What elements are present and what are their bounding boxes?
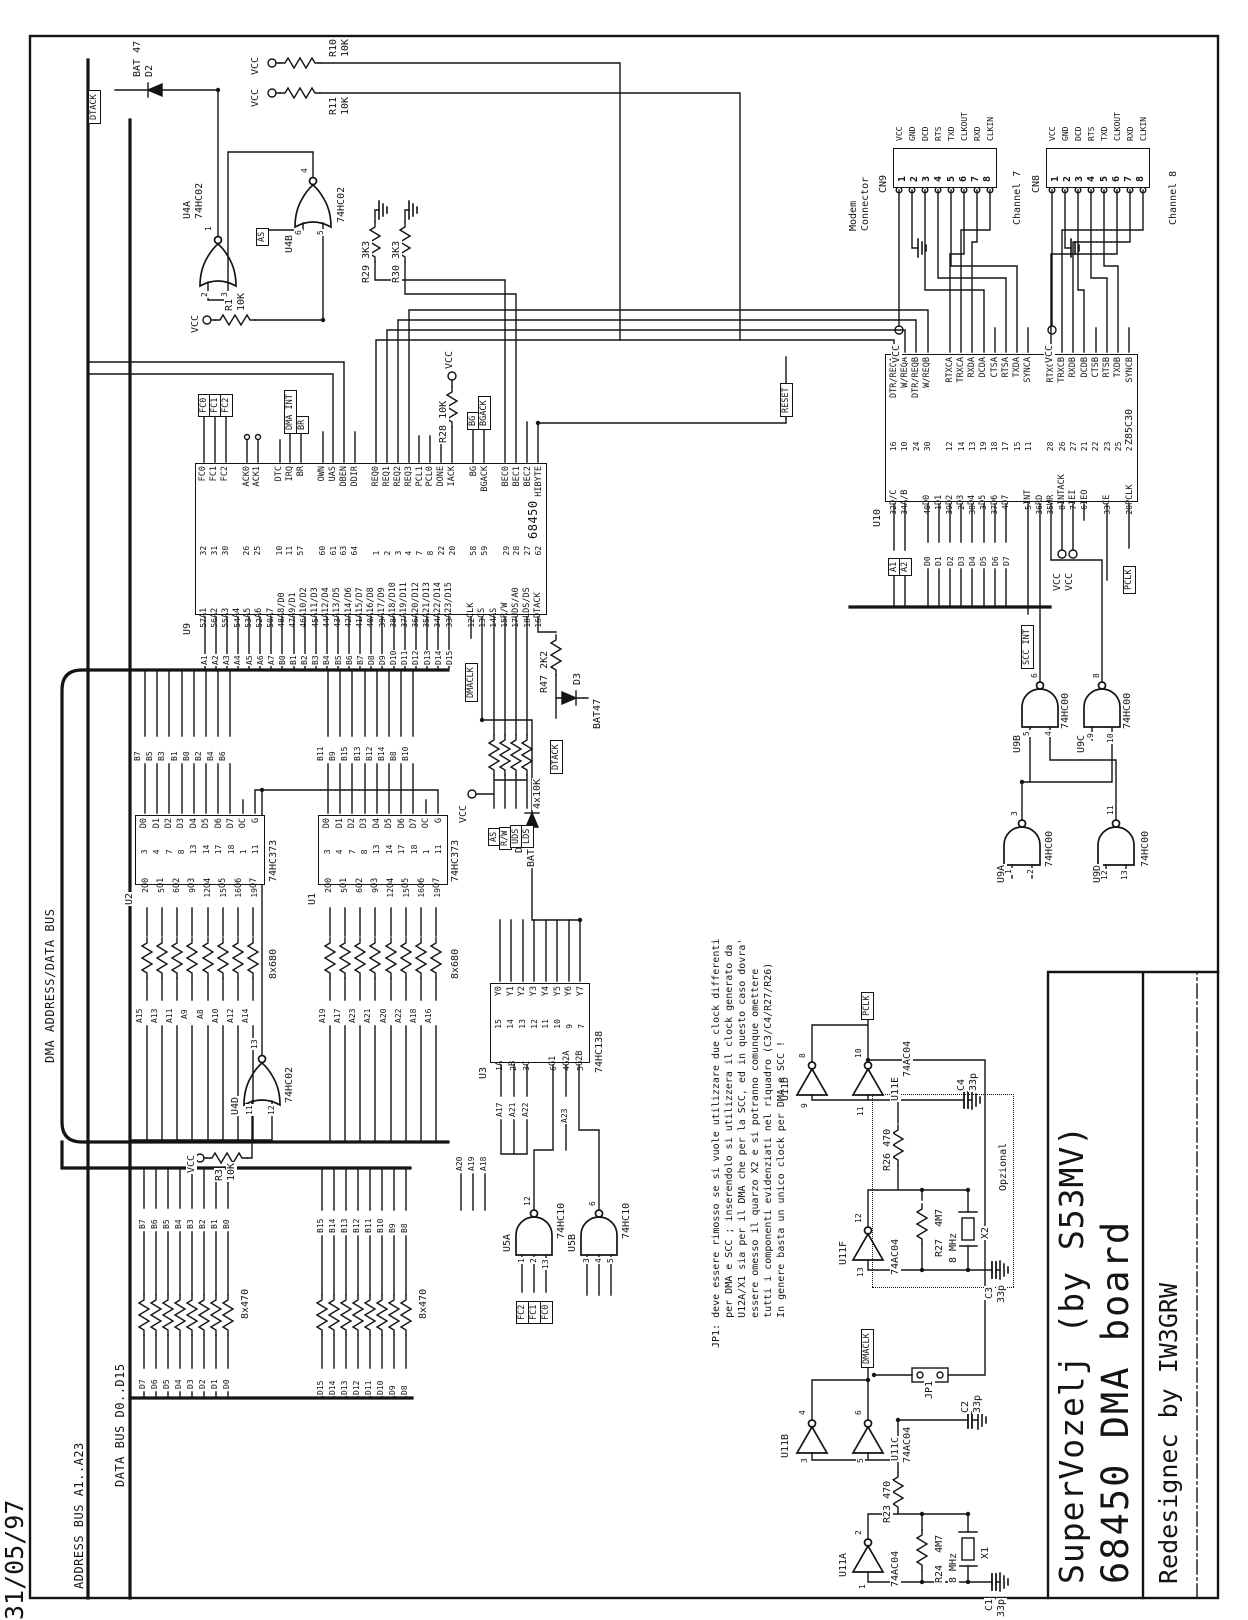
ic-pin: G11	[433, 818, 445, 860]
schematic-label: B10	[401, 746, 410, 762]
ic-pin	[230, 466, 241, 562]
schematic-label: 4	[594, 1257, 603, 1264]
schematic-label: A23	[348, 1008, 357, 1024]
schematic-label: 6	[294, 229, 303, 236]
pin-name: Q3	[370, 878, 380, 888]
redesigned-by: Redesignec by IW3GRW	[1154, 1283, 1183, 1584]
pin-number: 3	[522, 1066, 531, 1082]
schematic-label: B10	[376, 1218, 385, 1234]
ic-pin	[1034, 357, 1045, 457]
wire-label: D8	[366, 632, 377, 666]
schematic-label: B3	[186, 1218, 195, 1230]
schematic-label: 10K	[226, 1162, 237, 1182]
schematic-label: C1	[984, 1598, 995, 1612]
schematic-label: B2	[198, 1218, 207, 1230]
schematic-label: B6	[218, 750, 227, 762]
pin-number: 2	[509, 1066, 518, 1082]
pin-number: 15	[402, 888, 411, 904]
pin-name: D4	[967, 495, 977, 505]
ic-pin: Y411	[540, 986, 552, 1035]
pin-number: 1	[495, 1066, 504, 1082]
schematic-label: 74HC00	[1122, 692, 1133, 730]
schematic-label: B8	[389, 750, 398, 762]
ic-74hc138-decoder: 1A2B3C6G14G2A5G2B Y015Y114Y213Y312Y411Y5…	[490, 983, 590, 1063]
schematic-label: 8x470	[240, 1288, 251, 1320]
schematic-label: DMA ADDRESS/DATA BUS	[44, 908, 57, 1065]
connector-pin: 7	[1123, 175, 1135, 183]
ic-pin: TRXCB26	[1057, 357, 1068, 457]
schematic-label: R47 2K2	[539, 650, 550, 694]
schematic-label: A22	[394, 1008, 403, 1024]
ic-pin: G11	[250, 818, 262, 860]
schematic-label: B5	[162, 1218, 171, 1230]
pin-number: 6	[172, 888, 181, 904]
pin-number: 1	[934, 505, 943, 521]
signal-flag: LDS	[521, 825, 534, 848]
pin-name: A7	[266, 608, 276, 618]
signal-flag: AS	[256, 228, 269, 246]
schematic-label: 12	[523, 1195, 532, 1207]
schematic-label: 12	[1100, 869, 1109, 881]
schematic-label: D6	[150, 1378, 159, 1390]
pin-name: Y0	[494, 986, 504, 1035]
schematic-label: B15	[340, 746, 349, 762]
pin-name: REQ1	[382, 466, 392, 562]
schematic-label: 74AC04	[902, 1426, 913, 1464]
schematic-label: B14	[328, 1218, 337, 1234]
schematic-label: B7	[133, 750, 142, 762]
ic-74hc373-u2: 2Q05Q16Q29Q312Q415Q516Q619Q7 D03D14D27D3…	[135, 815, 265, 885]
inverter-u11a	[853, 1539, 883, 1572]
pin-number: 6	[549, 1066, 558, 1082]
pin-name: D3	[359, 818, 369, 860]
signal-name: TXD	[945, 92, 958, 142]
ic-z85c30-scc: 32D/C34A/B40D01D139D22D338D43D537D64D75I…	[885, 354, 1138, 502]
ic-pin: D514	[383, 818, 395, 860]
schematic-label: B1	[170, 750, 179, 762]
ic-pin	[933, 357, 944, 457]
nand3-gate-u5b	[581, 1210, 617, 1255]
schematic-label: 74AC04	[890, 1550, 901, 1588]
schematic-label: JP1	[924, 1380, 935, 1400]
ic-pin: BGACK59	[479, 466, 490, 562]
schematic-label: ADDRESS BUS A1..A23	[73, 1441, 86, 1590]
signal-flag: BR	[296, 416, 309, 434]
pin-number: 15	[500, 618, 509, 634]
schematic-label: 10	[854, 1047, 863, 1059]
schematic-label: 5	[1022, 730, 1031, 737]
ic-pin: W/REQB30	[922, 357, 933, 457]
ic-pin: Y114	[505, 986, 517, 1035]
schematic-label: D15	[316, 1380, 325, 1396]
connector-pin: 6	[1110, 175, 1122, 183]
schematic-label: D0	[222, 1378, 231, 1390]
wire-label: D3	[956, 545, 967, 567]
signal-name: DCD	[919, 92, 932, 142]
schematic-label: A17	[333, 1008, 342, 1024]
ic-pin: DTC10	[274, 466, 285, 562]
ic-pin: BR57	[295, 466, 306, 562]
schematic-label: 5	[316, 229, 325, 236]
ic-pin-column: FC032FC131FC230ACK026ACK125DTC10IRQ11BR5…	[198, 466, 544, 562]
pin-number: 20	[1125, 505, 1134, 521]
pin-name: G	[434, 818, 444, 860]
signal-flag: DTACK	[550, 740, 563, 774]
pin-name: A9/D1	[288, 592, 298, 618]
wire-label: B5	[333, 632, 344, 666]
wire-label: B7	[355, 632, 366, 666]
ic-pin: Y213	[517, 986, 529, 1035]
schematic-label: A13	[150, 1008, 159, 1024]
ic-pin: D617	[212, 818, 224, 860]
pin-name: REQ3	[404, 466, 414, 562]
schematic-label: B13	[340, 1218, 349, 1234]
signal-name: GND	[1059, 92, 1072, 142]
pin-number: 7	[1069, 505, 1078, 521]
pin-name: D5	[201, 818, 211, 860]
ic-pin: BEC029	[501, 466, 512, 562]
schematic-label: 11	[856, 1105, 865, 1117]
connector-cn9: 12345678	[893, 148, 997, 188]
pin-name: Y1	[506, 986, 516, 1035]
schematic-label: C4	[956, 1078, 967, 1092]
wire-label: D1	[933, 545, 944, 567]
schematic-label: BAT47	[592, 698, 603, 730]
schematic-label: U11C	[890, 1436, 901, 1462]
ic-pin: PCL17	[414, 466, 425, 562]
schematic-label: 8 MHz	[948, 1232, 959, 1264]
pin-name: Q0	[324, 878, 334, 888]
pin-name: BGACK	[480, 466, 490, 562]
pin-number: 6	[355, 888, 364, 904]
schematic-label: 4	[300, 167, 309, 174]
signal-name: VCC	[1046, 92, 1059, 142]
schematic-label: 10	[1106, 732, 1115, 744]
pin-name: Q0	[141, 878, 151, 888]
wire-label: A4	[232, 632, 243, 666]
pin-name: D0	[922, 495, 932, 505]
pin-name: A3	[221, 608, 231, 618]
pin-name: RXDA	[967, 357, 977, 457]
ic-pin: D413	[188, 818, 200, 860]
pin-name: DCDB	[1080, 357, 1090, 457]
pin-name: A/B	[900, 490, 910, 505]
scanned-schematic-page: 57A156A255A354A453A552A650A748A8/D047A9/…	[0, 0, 1248, 1620]
inverter-u11d	[797, 1062, 827, 1095]
schematic-label: 6	[1030, 672, 1039, 679]
signal-flag: FC2	[220, 394, 233, 417]
pin-name: RXDB	[1068, 357, 1078, 457]
schematic-label: 6	[588, 1200, 597, 1207]
pin-name: UAS	[328, 466, 338, 562]
schematic-label: B9	[328, 750, 337, 762]
pin-name: Q2	[355, 878, 365, 888]
ic-pin: FC032	[198, 466, 209, 562]
pin-number: 12	[386, 888, 395, 904]
schematic-label: VCC	[1044, 344, 1055, 364]
pin-name: C	[522, 1061, 532, 1066]
schematic-label: 74HC373	[268, 839, 279, 883]
ic-pin: Y77	[575, 986, 587, 1035]
pin-number: 14	[489, 618, 498, 634]
schematic-label: U4B	[284, 234, 295, 254]
pin-name: DTACK	[533, 592, 543, 618]
schematic-label: R26 470	[882, 1128, 893, 1172]
pin-number: 5	[157, 888, 166, 904]
pin-name: A8/D0	[277, 592, 287, 618]
schematic-label: 13	[1120, 869, 1129, 881]
pin-name: D6	[990, 495, 1000, 505]
schematic-label: 74HC138	[594, 1030, 605, 1074]
ic-pin: D718	[408, 818, 420, 860]
schematic-label: B11	[364, 1218, 373, 1234]
u9-bus-wire-labels: A1A2A3A4A5A6A7B0B1B2B3B4B5B6B7D8D9D10D11…	[199, 632, 455, 666]
pin-number: 13	[478, 618, 487, 634]
schematic-label: R23 470	[882, 1480, 893, 1524]
pin-name: DDIR	[350, 466, 360, 562]
pin-name: Q2	[172, 878, 182, 888]
ic-pin-column: Y015Y114Y213Y312Y411Y510Y69Y77	[493, 986, 587, 1035]
pin-name: Y2	[517, 986, 527, 1035]
schematic-label: A19	[467, 1156, 476, 1172]
signal-flag: BGACK	[478, 396, 491, 430]
wire-label: A1	[199, 632, 210, 666]
pin-name: RTSB	[1102, 357, 1112, 457]
pin-number: 12	[467, 618, 476, 634]
ic-pin	[263, 466, 274, 562]
pin-number: 15	[219, 888, 228, 904]
pin-name: Y5	[553, 986, 563, 1035]
ic-pin	[490, 466, 501, 562]
ic-pin-column: DTR/REQA16W/REQA10DTR/REQB24W/REQB30RTXC…	[888, 357, 1135, 457]
connector-pin: 2	[1061, 175, 1073, 183]
ic-pin: RTSB23	[1101, 357, 1112, 457]
schematic-label: CN9	[878, 174, 889, 194]
diodes	[148, 83, 576, 827]
schematic-label: A10	[211, 1008, 220, 1024]
schematic-label: A20	[379, 1008, 388, 1024]
schematic-label: A19	[318, 1008, 327, 1024]
pin-name: TXDB	[1113, 357, 1123, 457]
ic-pin: D03	[138, 818, 150, 860]
pin-name: Y7	[576, 986, 586, 1035]
schematic-label: 1	[517, 1257, 526, 1264]
schematic-label: X1	[980, 1546, 991, 1560]
pin-name: UDS/A0	[511, 587, 521, 618]
signal-name: CLKIN	[1137, 92, 1150, 142]
schematic-label: 4	[1044, 730, 1053, 737]
pin-name: D0	[322, 818, 332, 860]
ic-pin: Y015	[493, 986, 505, 1035]
schematic-label: VCC	[891, 344, 902, 364]
pin-name: W/REQB	[922, 357, 932, 457]
schematic-label: U5A	[502, 1233, 513, 1253]
pin-name: SYNCA	[1023, 357, 1033, 457]
pin-name: CS	[477, 608, 487, 618]
pin-number: 2	[324, 888, 333, 904]
inverter-u11e	[853, 1062, 883, 1095]
schematic-label: 2	[200, 291, 209, 298]
wire-label: B3	[310, 632, 321, 666]
schematic-label: A17	[495, 1102, 504, 1118]
schematic-label: B14	[377, 746, 386, 762]
pin-name: IEI	[1068, 490, 1078, 505]
schematic-label: 10K	[340, 96, 351, 116]
schematic-label: 10K	[236, 292, 247, 312]
signal-name: CLKOUT	[1111, 92, 1124, 142]
ic-pin: D03	[321, 818, 333, 860]
schematic-label: X2	[980, 1226, 991, 1240]
wire-label: D12	[410, 632, 421, 666]
note-line: U12A/X1 sia per il DMA che per la SCC, e…	[736, 939, 749, 1348]
pin-name: BR	[296, 466, 306, 562]
ic-pin: D413	[371, 818, 383, 860]
ic-74hc373-u1: 2Q05Q16Q29Q312Q415Q516Q619Q7 D03D14D27D3…	[318, 815, 448, 885]
pin-name: INTACK	[1057, 474, 1067, 505]
signal-flag: A2	[899, 558, 912, 576]
inverter-u11b	[797, 1420, 827, 1453]
pin-name: IRQ	[285, 466, 295, 562]
schematic-title: SuperVozelj (by S53MV)	[1052, 1125, 1091, 1584]
pin-name: R/W	[500, 603, 510, 618]
schematic-label: 74AC04	[890, 1238, 901, 1276]
pin-name: A18/D10	[388, 582, 398, 618]
schematic-label: 13	[250, 1038, 259, 1050]
schematic-label: 12	[267, 1104, 276, 1116]
pin-number: 35	[1046, 505, 1055, 521]
pin-name: PCL0	[425, 466, 435, 562]
pin-name: BEC1	[512, 466, 522, 562]
pin-name: Q4	[386, 878, 396, 888]
connector-pin: 3	[1074, 175, 1086, 183]
connector-pin: 4	[933, 175, 945, 183]
pin-number: 12	[203, 888, 212, 904]
pin-name: A11/D3	[310, 587, 320, 618]
nand-gate-u9d	[1098, 820, 1134, 865]
pin-number: 32	[889, 505, 898, 521]
pin-name: FC0	[198, 466, 208, 562]
schematic-label: R27 4M7	[934, 1208, 945, 1258]
pin-name: Y6	[564, 986, 574, 1035]
ic-pin: W/REQA10	[899, 357, 910, 457]
schematic-label: D14	[328, 1380, 337, 1396]
pin-number: 4	[1001, 505, 1010, 521]
ic-pin: ACK125	[252, 466, 263, 562]
schematic-label: 12	[854, 1212, 863, 1224]
schematic-label: 74HC02	[336, 186, 347, 224]
pin-number: 19	[250, 888, 259, 904]
cn9-signal-names: VCCGNDDCDRTSTXDCLKOUTRXDCLKIN	[893, 92, 997, 142]
schematic-label: 8x470	[418, 1288, 429, 1320]
pin-name: D4	[189, 818, 199, 860]
pin-name: Q7	[249, 878, 259, 888]
schematic-label: R28 10K	[438, 400, 449, 444]
schematic-label: U4D	[230, 1096, 241, 1116]
pin-name: A20/D12	[411, 582, 421, 618]
schematic-label: 11	[245, 1104, 254, 1116]
ic-pin: DDIR64	[349, 466, 360, 562]
schematic-label: 10K	[340, 38, 351, 58]
ic-pin: DTR/REQB24	[910, 357, 921, 457]
pin-name: BG	[469, 466, 479, 562]
schematic-label: R30 3K3	[391, 240, 402, 284]
pin-name: Q1	[339, 878, 349, 888]
wire-label: A6	[255, 632, 266, 666]
schematic-label: D3	[572, 672, 583, 686]
ic-pin: FC131	[209, 466, 220, 562]
ic-pin: TXDB25	[1113, 357, 1124, 457]
pin-name: A12/D4	[321, 587, 331, 618]
schematic-label: B12	[365, 746, 374, 762]
nor-gate-u4a	[200, 237, 236, 287]
ic-pin: PCL08	[425, 466, 436, 562]
ic-pin: RTXCB28	[1045, 357, 1056, 457]
nand-gate-u9a	[1004, 820, 1040, 865]
connector-pin: 3	[921, 175, 933, 183]
schematic-label: 74HC10	[621, 1202, 632, 1240]
pin-number: 9	[371, 888, 380, 904]
ic-pin: D718	[225, 818, 237, 860]
wire-label: D2	[945, 545, 956, 567]
schematic-label: 74AC04	[902, 1040, 913, 1078]
schematic-label: 74HC02	[194, 182, 205, 220]
pin-name: A5	[243, 608, 253, 618]
schematic-label: R29 3K3	[361, 240, 372, 284]
pin-name: DTC	[274, 466, 284, 562]
ic-pin: RTSA17	[1000, 357, 1011, 457]
pin-name: RTXCA	[945, 357, 955, 457]
pin-name: D1	[934, 495, 944, 505]
ic-pin: CTSA18	[989, 357, 1000, 457]
pin-name: OC	[421, 818, 431, 860]
schematic-label: VCC	[186, 1154, 197, 1174]
pin-name: A16/D8	[366, 587, 376, 618]
wire-label: B2	[299, 632, 310, 666]
ic-pin: DCDA19	[978, 357, 989, 457]
connector-pin: 1	[896, 175, 908, 183]
signal-flag: DMACLK	[861, 1329, 874, 1368]
pin-name: G2B	[575, 1051, 585, 1066]
pin-name: Q1	[156, 878, 166, 888]
schematic-label: 2	[1026, 868, 1035, 875]
pin-name: INT	[1023, 490, 1033, 505]
schematic-label: 5	[606, 1257, 615, 1264]
schematic-label: Modem	[848, 200, 859, 232]
schematic-label: 4	[798, 1409, 807, 1416]
wire-label: D0	[922, 545, 933, 567]
signal-name: RTS	[932, 92, 945, 142]
pin-name: A1	[199, 608, 209, 618]
pin-number: 16	[417, 888, 426, 904]
signal-flag: SCC INT	[1021, 625, 1034, 669]
pin-name: DBEN	[339, 466, 349, 562]
schematic-label: R10	[328, 38, 339, 58]
pin-name: D2	[945, 495, 955, 505]
schematic-label: A20	[455, 1156, 464, 1172]
ic-pin: ACK026	[241, 466, 252, 562]
ic-pin-column: D03D14D27D38D413D514D617D718OC1G11	[321, 818, 445, 860]
schematic-label: A21	[508, 1102, 517, 1118]
schematic-label: BAT 47	[132, 40, 143, 78]
pin-name: A2	[210, 608, 220, 618]
signal-name: RTS	[1085, 92, 1098, 142]
connector-pin: 5	[945, 175, 957, 183]
pin-name: W/REQA	[900, 357, 910, 457]
nand-gate-u9b	[1022, 682, 1058, 727]
wire-label: D14	[433, 632, 444, 666]
schematic-label: A11	[165, 1008, 174, 1024]
connector-pin: 8	[1135, 175, 1147, 183]
